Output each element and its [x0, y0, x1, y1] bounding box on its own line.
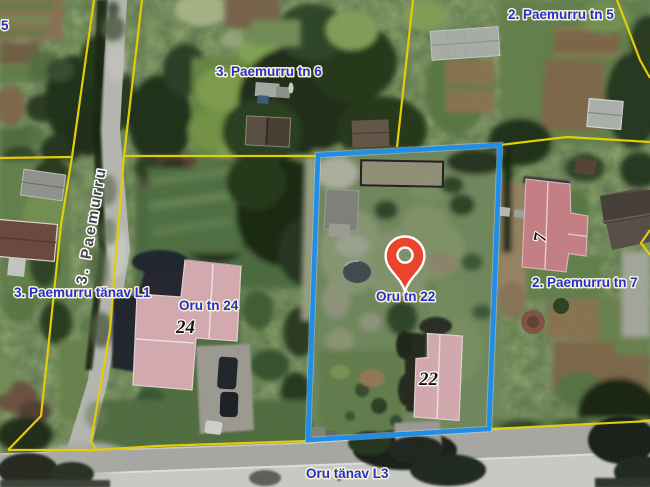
svg-text:2. Paemurru tn 7: 2. Paemurru tn 7: [532, 275, 638, 290]
svg-text:2. Paemurru tn 5: 2. Paemurru tn 5: [508, 7, 614, 22]
svg-text:22: 22: [418, 369, 439, 390]
svg-text:5: 5: [1, 18, 9, 33]
svg-text:Oru tänav L3: Oru tänav L3: [306, 466, 389, 481]
svg-text:Oru tn 24: Oru tn 24: [179, 298, 239, 313]
svg-text:3. Paemurru tänav L1: 3. Paemurru tänav L1: [14, 285, 151, 300]
svg-text:3. Paemurru tn 6: 3. Paemurru tn 6: [216, 64, 322, 79]
svg-text:24: 24: [175, 317, 195, 338]
